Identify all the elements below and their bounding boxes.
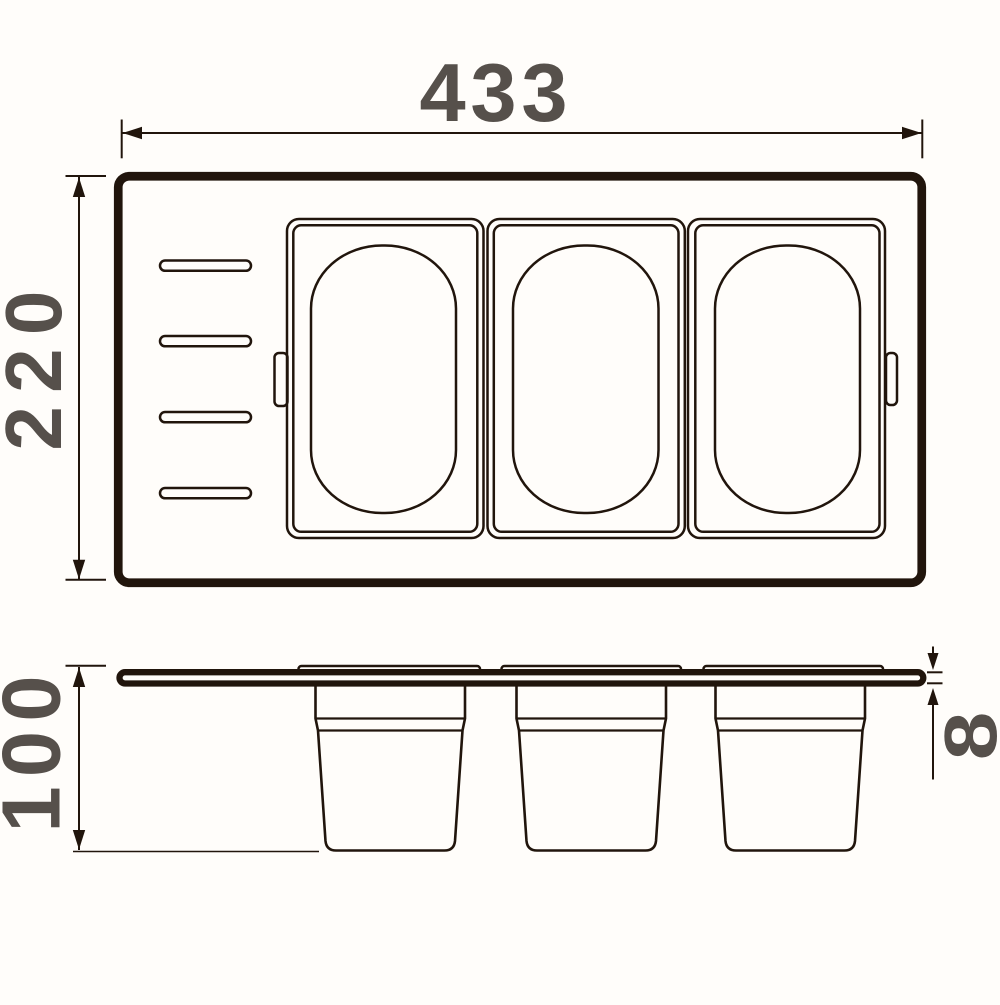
svg-text:8: 8: [930, 712, 1000, 761]
svg-text:220: 220: [0, 291, 78, 451]
svg-text:100: 100: [0, 676, 78, 833]
svg-text:433: 433: [420, 46, 568, 139]
